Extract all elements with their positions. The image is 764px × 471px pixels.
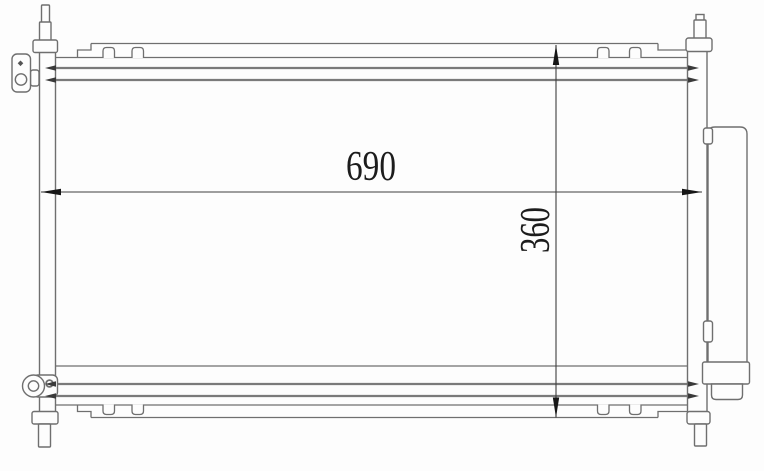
eyelet-hole [28, 381, 38, 391]
bottom-right-fitting-cap [687, 412, 710, 425]
bottom-header-tab [598, 405, 610, 415]
outlet-pipe [39, 424, 51, 447]
top-header-tab [132, 48, 144, 59]
inlet-pipe [40, 22, 52, 41]
bottom-header-plate-edge [78, 405, 688, 418]
arrow-down-icon [553, 398, 559, 418]
height-dimension: 360 [513, 45, 559, 418]
tube-end-markers [45, 65, 699, 399]
top-header-plate-edge [78, 44, 688, 58]
inlet-pipe-tip [42, 5, 50, 23]
receiver-drier-body [708, 127, 747, 363]
arrow-up-icon [553, 45, 559, 65]
mounting-bracket-top-left [12, 54, 31, 92]
outlet-fitting-cap [32, 412, 58, 425]
height-dimension-value: 360 [513, 207, 559, 253]
receiver-drier-block [703, 362, 750, 384]
width-dimension-value: 690 [346, 144, 396, 190]
top-right-fitting-cap [686, 38, 712, 52]
condenser-technical-drawing-page: 690 360 [0, 0, 764, 471]
drier-clip-top [704, 128, 713, 144]
top-header-tab [630, 48, 642, 59]
bracket-clip [31, 70, 40, 86]
left-tank-body [40, 51, 56, 412]
receiver-drier-end [712, 384, 743, 400]
top-header-tab [103, 48, 115, 59]
bottom-header-tab [132, 405, 144, 415]
left-header-tank [12, 5, 58, 447]
bottom-right-pipe [695, 424, 707, 446]
bracket-hole [15, 74, 26, 85]
bottom-header-tab [103, 405, 115, 415]
top-right-pipe [694, 20, 706, 39]
inlet-fitting-cap [33, 40, 58, 53]
condenser-drawing: 690 360 [0, 0, 764, 471]
condenser-core [56, 44, 693, 418]
drier-clip-bottom [704, 321, 713, 342]
bottom-header-tab [630, 405, 642, 415]
top-header-tab [598, 48, 610, 59]
right-tank-body [688, 50, 708, 412]
width-dimension: 690 [41, 144, 702, 195]
